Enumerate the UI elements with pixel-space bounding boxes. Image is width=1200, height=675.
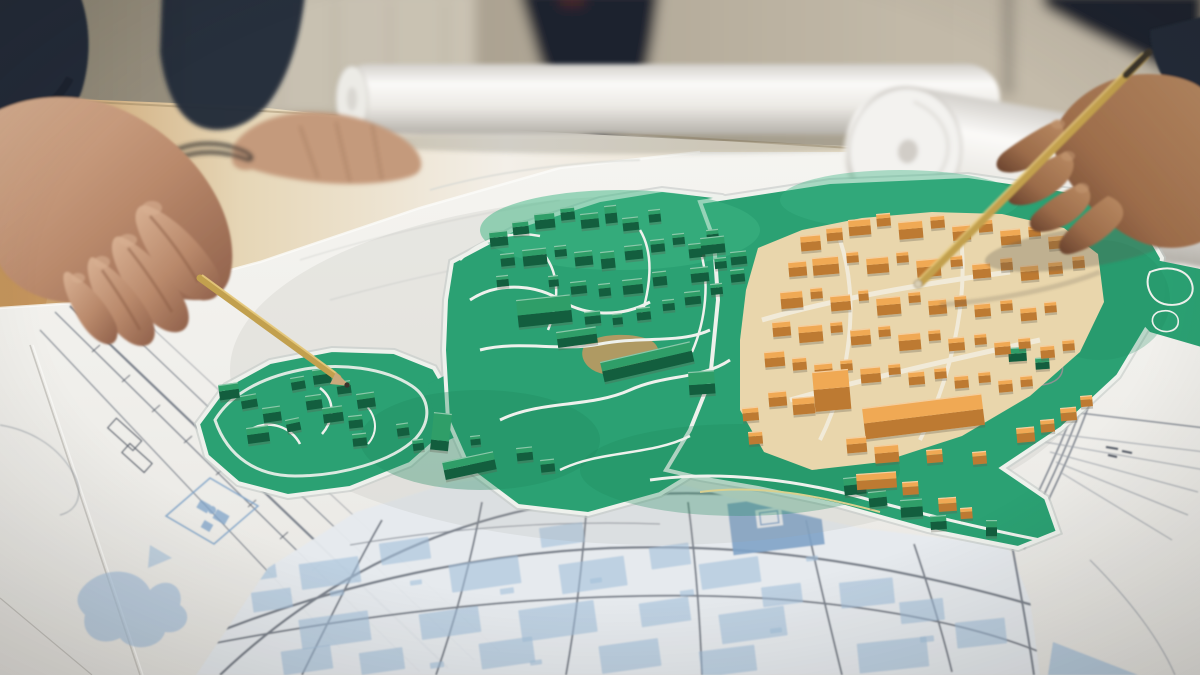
vignette (0, 0, 1200, 675)
photo-urban-planning-scene (0, 0, 1200, 675)
scene-canvas (0, 0, 1200, 675)
